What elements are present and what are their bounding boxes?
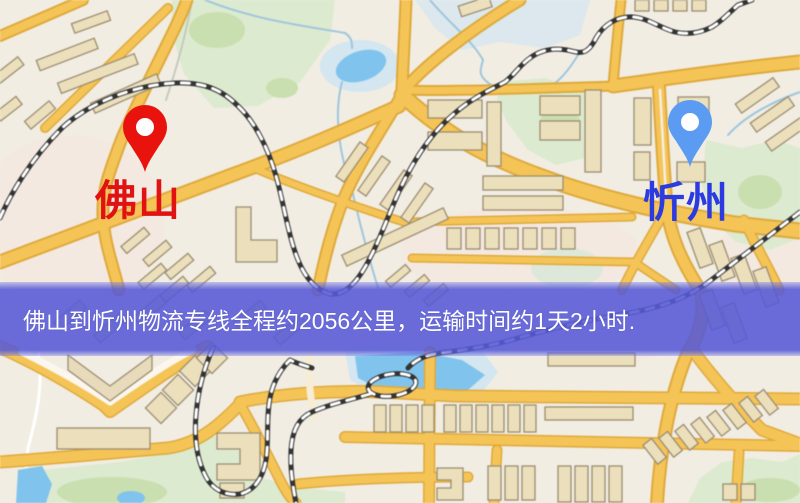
- destination-city-label: 忻州: [601, 179, 771, 227]
- map-image: 佛山 忻州 佛山到忻州物流专线全程约2056公里，运输时间约1天2小时.: [0, 0, 800, 503]
- origin-city-label: 佛山: [53, 177, 223, 225]
- blue-pin-icon: [665, 97, 715, 167]
- route-info-banner: 佛山到忻州物流专线全程约2056公里，运输时间约1天2小时.: [0, 282, 800, 356]
- red-pin-icon: [120, 102, 170, 172]
- map-background: [0, 0, 800, 503]
- route-info-text: 佛山到忻州物流专线全程约2056公里，运输时间约1天2小时.: [0, 302, 635, 336]
